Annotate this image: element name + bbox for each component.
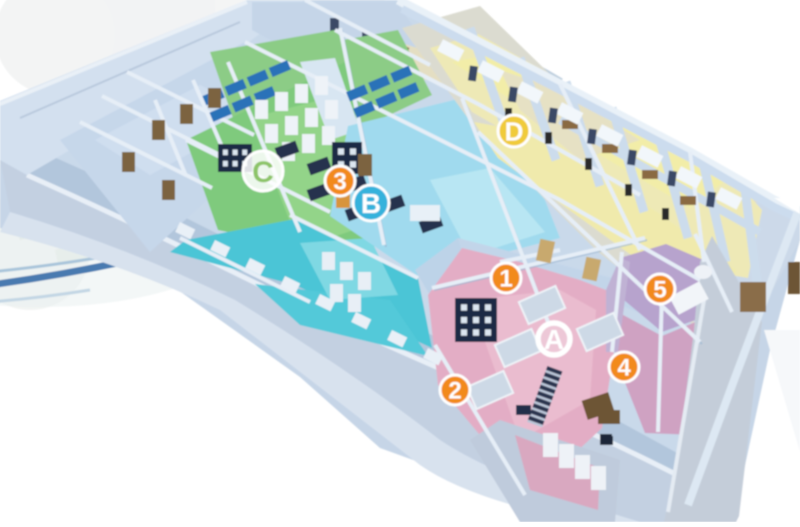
svg-text:C: C	[252, 156, 274, 189]
svg-text:3: 3	[333, 169, 346, 196]
svg-text:2: 2	[448, 378, 461, 405]
svg-text:4: 4	[617, 355, 631, 382]
svg-text:1: 1	[499, 266, 512, 293]
svg-text:D: D	[505, 116, 524, 146]
svg-text:A: A	[544, 324, 564, 355]
svg-text:B: B	[361, 188, 381, 219]
svg-text:5: 5	[653, 277, 666, 304]
